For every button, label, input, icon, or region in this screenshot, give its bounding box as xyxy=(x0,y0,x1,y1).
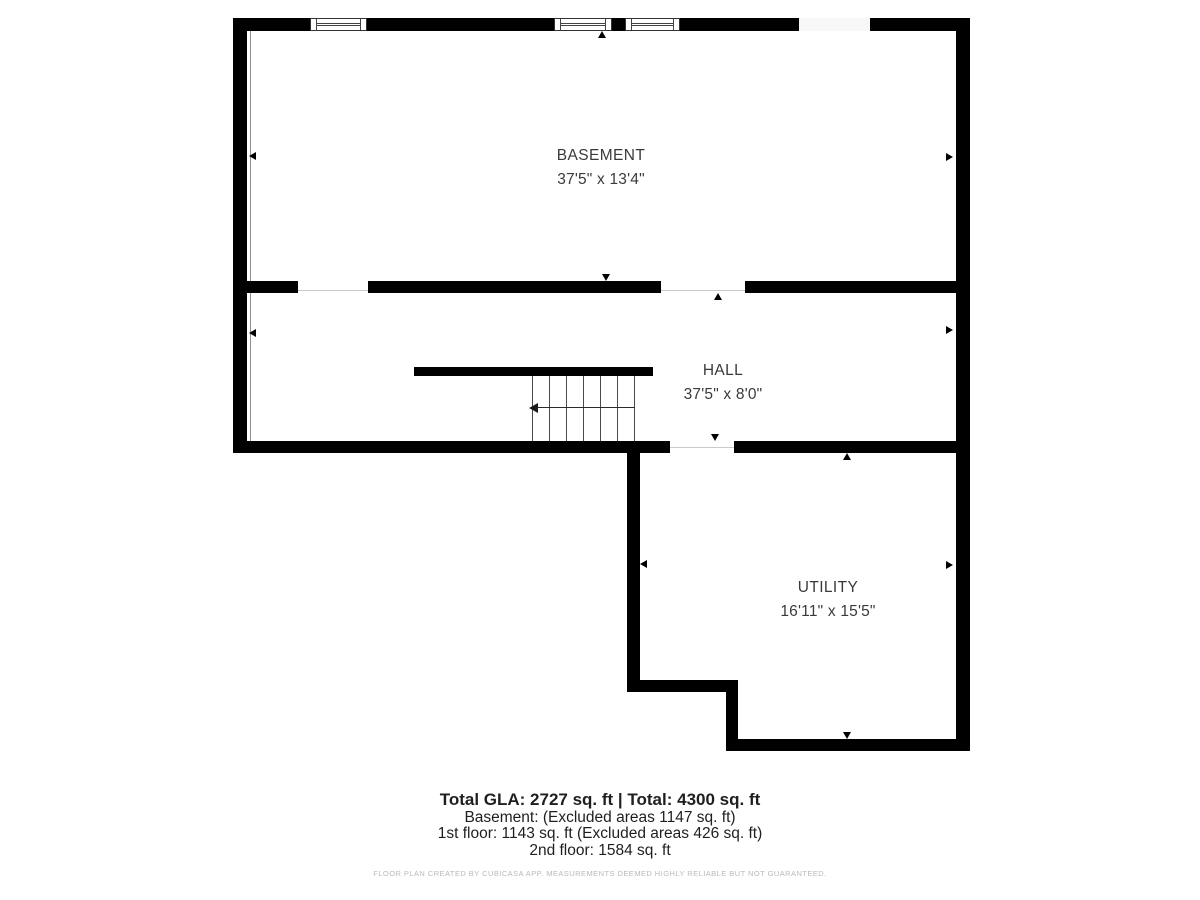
window-frame-cap xyxy=(360,19,361,30)
wall-segment xyxy=(233,441,670,453)
disclaimer-text: FLOOR PLAN CREATED BY CUBICASA APP. MEAS… xyxy=(0,869,1200,878)
wall-utility-bottom xyxy=(726,739,970,751)
room-name: UTILITY xyxy=(678,579,978,597)
wall-inner-edge-line xyxy=(250,31,251,441)
wall-segment xyxy=(368,281,661,293)
opening-arrow-icon xyxy=(714,293,722,300)
wall-segment xyxy=(367,18,554,31)
room-dimensions: 37'5" x 8'0" xyxy=(573,386,873,404)
wall-marker-icon xyxy=(946,153,953,161)
room-name: HALL xyxy=(573,362,873,380)
room-label-basement: BASEMENT 37'5" x 13'4" xyxy=(451,147,751,189)
window-frame-cap xyxy=(316,19,317,30)
opening-arrow-icon xyxy=(598,31,606,38)
window-frame-cap xyxy=(631,19,632,30)
room-label-utility: UTILITY 16'11" x 15'5" xyxy=(678,579,978,621)
stair-tread-line xyxy=(566,376,567,441)
wall-opening xyxy=(799,18,870,31)
summary-first-floor-line: 1st floor: 1143 sq. ft (Excluded areas 4… xyxy=(0,825,1200,843)
opening-arrow-icon xyxy=(843,732,851,739)
doorway-opening xyxy=(661,290,745,291)
wall-utility-notch-h xyxy=(627,680,738,692)
wall-marker-icon xyxy=(249,329,256,337)
room-dimensions: 16'11" x 15'5" xyxy=(678,603,978,621)
opening-arrow-icon xyxy=(843,453,851,460)
summary-total-line: Total GLA: 2727 sq. ft | Total: 4300 sq.… xyxy=(0,790,1200,810)
wall-utility-left xyxy=(627,453,640,692)
window-frame-cap xyxy=(673,19,674,30)
window-icon xyxy=(310,18,367,31)
window-frame-cap xyxy=(560,19,561,30)
doorway-opening xyxy=(670,447,734,448)
summary-second-floor-line: 2nd floor: 1584 sq. ft xyxy=(0,842,1200,860)
wall-marker-icon xyxy=(946,326,953,334)
wall-right-exterior xyxy=(956,18,970,751)
window-icon xyxy=(625,18,680,31)
room-name: BASEMENT xyxy=(451,147,751,165)
stair-direction-line xyxy=(538,407,635,408)
window-glass-line xyxy=(631,23,674,26)
wall-segment xyxy=(680,18,799,31)
stair-direction-arrow-icon xyxy=(529,403,538,413)
doorway-opening xyxy=(298,290,368,291)
window-glass-line xyxy=(316,23,361,26)
opening-arrow-icon xyxy=(711,434,719,441)
wall-segment xyxy=(745,281,970,293)
window-glass-line xyxy=(560,23,606,26)
wall-marker-icon xyxy=(640,560,647,568)
floor-plan-canvas: BASEMENT 37'5" x 13'4" HALL 37'5" x 8'0"… xyxy=(0,0,1200,900)
opening-arrow-icon xyxy=(602,274,610,281)
wall-segment xyxy=(870,18,970,31)
wall-segment xyxy=(612,18,625,31)
wall-segment xyxy=(734,441,970,453)
room-label-hall: HALL 37'5" x 8'0" xyxy=(573,362,873,404)
wall-left-exterior xyxy=(233,18,247,453)
window-frame-cap xyxy=(605,19,606,30)
window-icon xyxy=(554,18,612,31)
stair-tread-line xyxy=(549,376,550,441)
wall-segment xyxy=(233,281,298,293)
room-dimensions: 37'5" x 13'4" xyxy=(451,171,751,189)
wall-marker-icon xyxy=(946,561,953,569)
wall-marker-icon xyxy=(249,152,256,160)
